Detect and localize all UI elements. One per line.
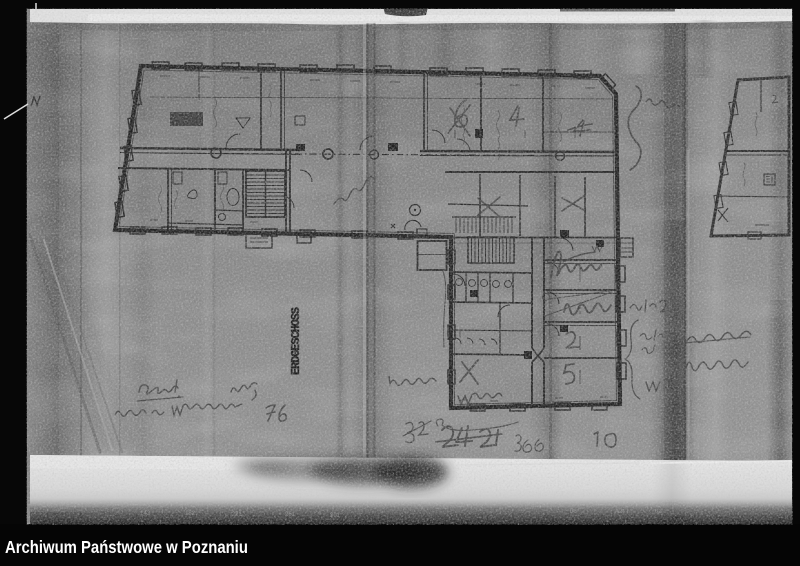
svg-text:Archiwum Państwowe w Poznaniu: Archiwum Państwowe w Poznaniu <box>5 538 248 557</box>
